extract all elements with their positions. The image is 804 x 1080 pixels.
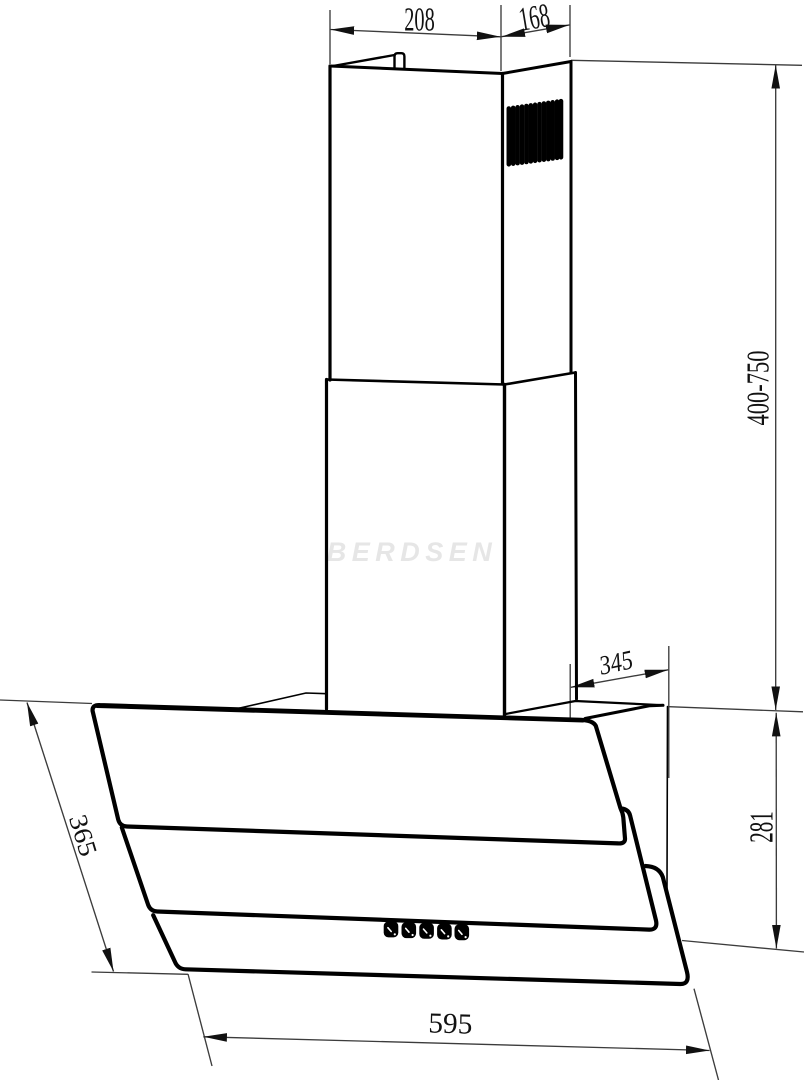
svg-text:400-750: 400-750 <box>740 351 776 426</box>
svg-text:208: 208 <box>404 2 435 39</box>
svg-text:365: 365 <box>63 811 103 860</box>
svg-text:BERDSEN: BERDSEN <box>327 537 498 567</box>
svg-text:345: 345 <box>596 644 636 680</box>
svg-text:168: 168 <box>516 0 552 39</box>
svg-text:595: 595 <box>428 1007 473 1040</box>
svg-text:281: 281 <box>743 811 780 843</box>
